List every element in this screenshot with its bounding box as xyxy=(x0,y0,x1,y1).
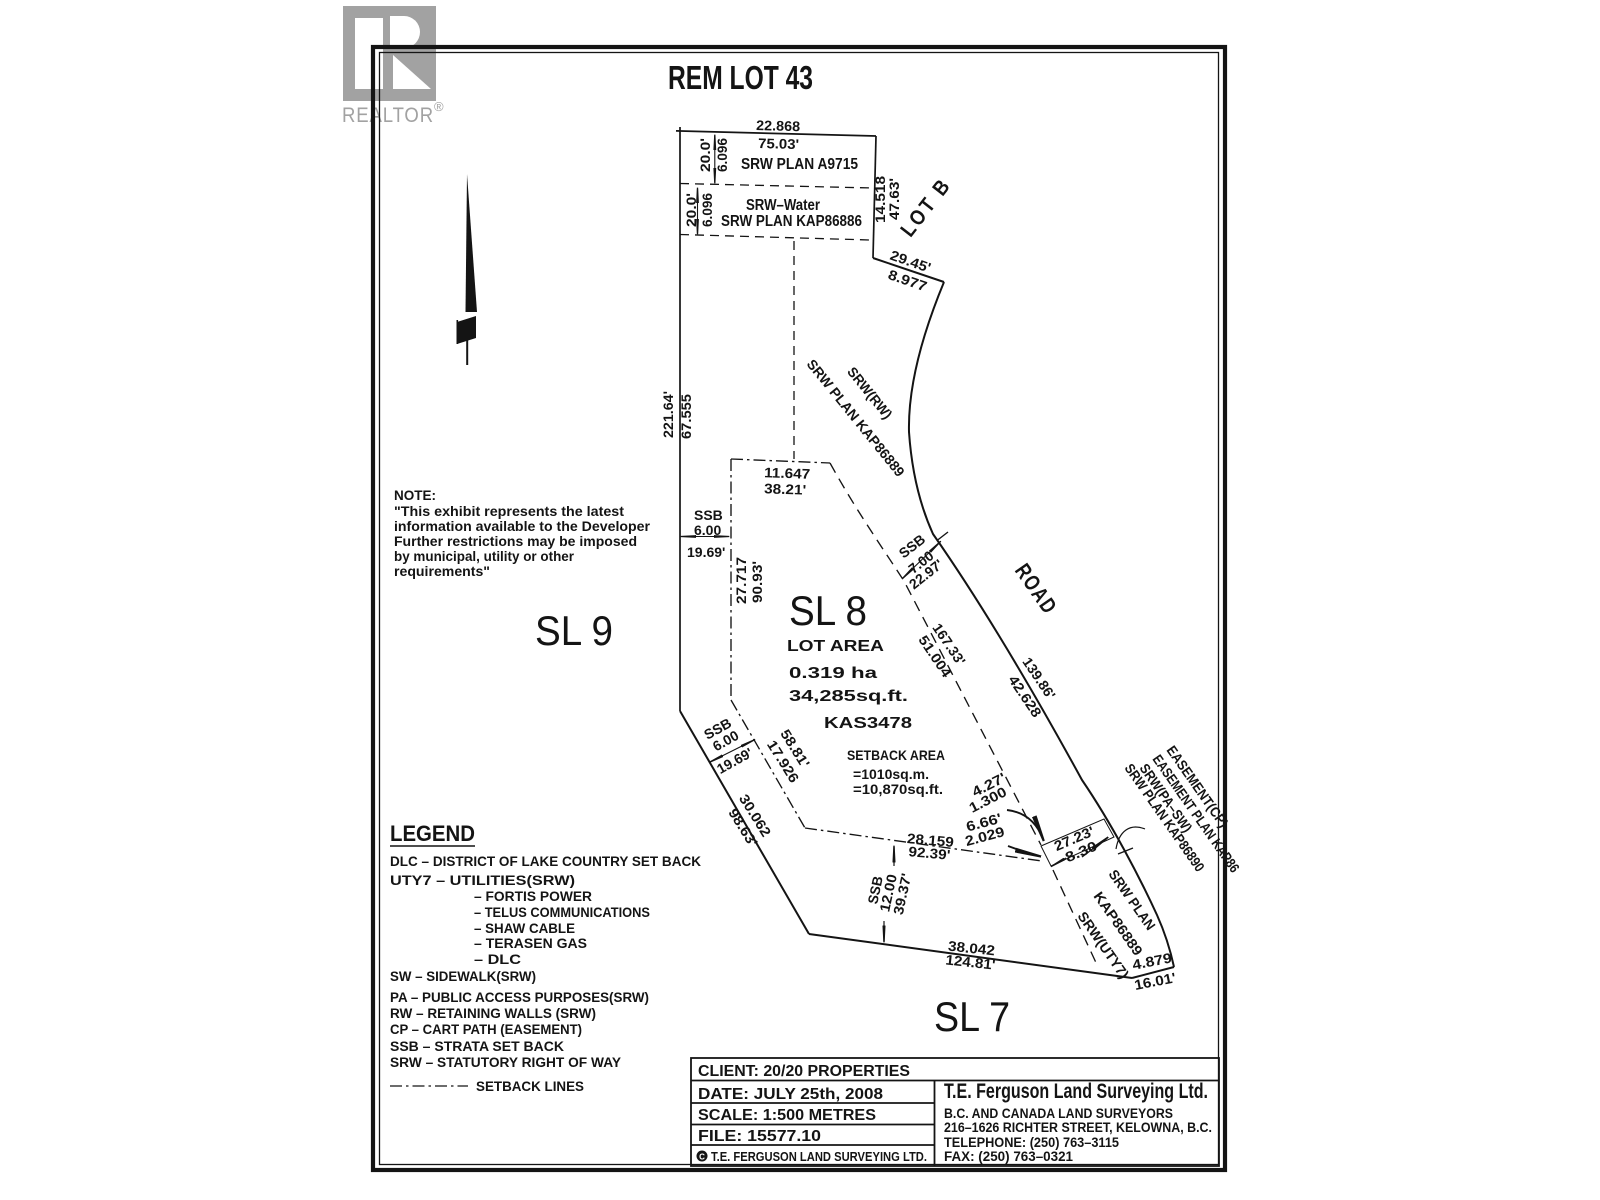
svg-text:DLC – DISTRICT OF LAKE COUNTRY: DLC – DISTRICT OF LAKE COUNTRY SET BACK xyxy=(390,854,701,869)
svg-text:SRW PLAN KAP86886: SRW PLAN KAP86886 xyxy=(721,213,862,230)
svg-text:20.0': 20.0' xyxy=(683,193,699,227)
svg-text:®: ® xyxy=(434,99,444,114)
svg-text:DATE: JULY 25th, 2008: DATE: JULY 25th, 2008 xyxy=(698,1086,883,1103)
svg-text:221.64': 221.64' xyxy=(660,391,676,438)
svg-text:SCALE: 1:500 METRES: SCALE: 1:500 METRES xyxy=(698,1107,876,1124)
svg-text:0.319 ha: 0.319 ha xyxy=(789,665,877,682)
svg-text:67.555: 67.555 xyxy=(678,394,694,439)
svg-text:=1010sq.m.: =1010sq.m. xyxy=(853,766,929,782)
svg-text:SRW PLAN A9715: SRW PLAN A9715 xyxy=(741,156,858,173)
svg-text:REM LOT 43: REM LOT 43 xyxy=(668,59,813,96)
svg-text:PA – PUBLIC ACCESS PURPOSES(SR: PA – PUBLIC ACCESS PURPOSES(SRW) xyxy=(390,990,649,1005)
svg-text:CP – CART PATH (EASEMENT): CP – CART PATH (EASEMENT) xyxy=(390,1022,582,1037)
svg-text:92.39': 92.39' xyxy=(908,843,951,863)
svg-text:SW – SIDEWALK(SRW): SW – SIDEWALK(SRW) xyxy=(390,969,536,984)
svg-text:6.00: 6.00 xyxy=(694,522,721,538)
svg-text:SL 9: SL 9 xyxy=(535,607,613,654)
svg-text:by municipal, utility or other: by municipal, utility or other xyxy=(394,549,575,564)
svg-text:– DLC: – DLC xyxy=(474,952,521,967)
svg-text:6.096: 6.096 xyxy=(714,138,730,172)
svg-text:NOTE:: NOTE: xyxy=(394,488,436,503)
svg-text:FILE: 15577.10: FILE: 15577.10 xyxy=(698,1128,821,1145)
svg-text:KAS3478: KAS3478 xyxy=(824,715,912,732)
svg-text:T.E. Ferguson Land Surveying L: T.E. Ferguson Land Surveying Ltd. xyxy=(944,1080,1208,1103)
svg-text:– TERASEN GAS: – TERASEN GAS xyxy=(474,936,587,951)
svg-text:20.0': 20.0' xyxy=(697,138,713,172)
svg-text:Further restrictions may be im: Further restrictions may be imposed xyxy=(394,534,637,549)
svg-text:C: C xyxy=(699,1153,705,1162)
svg-text:LEGEND: LEGEND xyxy=(390,821,475,846)
svg-text:47.63': 47.63' xyxy=(886,178,902,220)
svg-text:SL 7: SL 7 xyxy=(934,993,1010,1040)
svg-text:=10,870sq.ft.: =10,870sq.ft. xyxy=(853,781,943,797)
svg-text:"This exhibit represents the l: "This exhibit represents the latest xyxy=(394,504,625,519)
svg-text:SRW – STATUTORY RIGHT OF WAY: SRW – STATUTORY RIGHT OF WAY xyxy=(390,1055,621,1070)
svg-text:22.868: 22.868 xyxy=(756,117,801,134)
svg-text:11.647: 11.647 xyxy=(764,464,811,482)
svg-text:– FORTIS POWER: – FORTIS POWER xyxy=(474,889,592,904)
svg-text:ROAD: ROAD xyxy=(1010,559,1063,619)
svg-text:T.E. FERGUSON LAND SURVEYING L: T.E. FERGUSON LAND SURVEYING LTD. xyxy=(711,1149,927,1164)
svg-text:SETBACK LINES: SETBACK LINES xyxy=(476,1079,584,1094)
svg-text:SRW–Water: SRW–Water xyxy=(746,197,820,214)
svg-text:SETBACK AREA: SETBACK AREA xyxy=(847,747,945,763)
svg-text:90.93': 90.93' xyxy=(749,561,765,603)
svg-text:B.C. AND CANADA LAND SURVEYORS: B.C. AND CANADA LAND SURVEYORS xyxy=(944,1106,1173,1121)
svg-text:6.096: 6.096 xyxy=(699,193,715,227)
svg-text:FAX: (250) 763–0321: FAX: (250) 763–0321 xyxy=(944,1149,1073,1164)
svg-text:LOT AREA: LOT AREA xyxy=(787,638,885,655)
svg-text:SL 8: SL 8 xyxy=(789,587,867,634)
svg-text:34,285sq.ft.: 34,285sq.ft. xyxy=(789,688,908,705)
svg-text:requirements": requirements" xyxy=(394,564,490,579)
svg-text:TELEPHONE: (250) 763–3115: TELEPHONE: (250) 763–3115 xyxy=(944,1135,1119,1150)
svg-text:LOT B: LOT B xyxy=(896,174,956,242)
svg-text:UTY7 – UTILITIES(SRW): UTY7 – UTILITIES(SRW) xyxy=(390,873,575,888)
svg-text:– TELUS COMMUNICATIONS: – TELUS COMMUNICATIONS xyxy=(474,905,650,920)
svg-text:75.03': 75.03' xyxy=(758,135,799,152)
svg-text:REALTOR: REALTOR xyxy=(342,104,434,127)
svg-text:– SHAW CABLE: – SHAW CABLE xyxy=(474,921,575,936)
svg-text:CLIENT: 20/20 PROPERTIES: CLIENT: 20/20 PROPERTIES xyxy=(698,1063,910,1080)
svg-text:RW – RETAINING WALLS (SRW): RW – RETAINING WALLS (SRW) xyxy=(390,1006,596,1021)
svg-text:216–1626 RICHTER STREET, KELOW: 216–1626 RICHTER STREET, KELOWNA, B.C. xyxy=(944,1120,1212,1135)
svg-text:SSB – STRATA SET BACK: SSB – STRATA SET BACK xyxy=(390,1039,564,1054)
svg-text:information available to the D: information available to the Developer xyxy=(394,519,651,534)
svg-text:38.21': 38.21' xyxy=(764,480,807,497)
svg-text:16.01': 16.01' xyxy=(1133,969,1177,993)
svg-text:SSB: SSB xyxy=(694,507,723,523)
svg-text:27.717: 27.717 xyxy=(733,557,749,604)
svg-text:19.69': 19.69' xyxy=(687,544,725,560)
